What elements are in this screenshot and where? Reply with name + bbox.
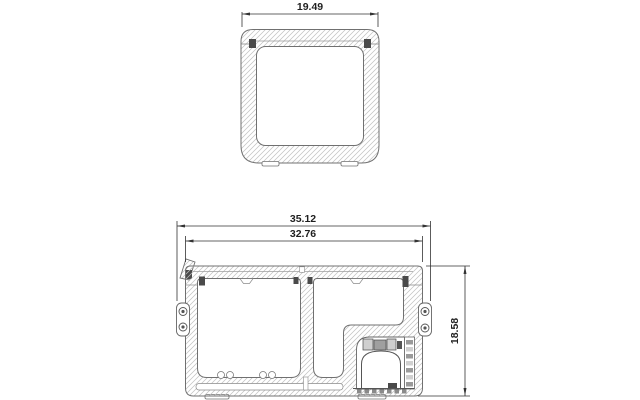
arrowhead [177, 225, 185, 228]
lid-center-seam [300, 267, 305, 273]
fin [406, 375, 413, 380]
bottom-channel [196, 384, 343, 391]
dimension-label-top-width: 19.49 [297, 1, 323, 13]
rail-tooth [380, 390, 385, 394]
latch-plate-left [177, 303, 190, 336]
left-compartment [198, 279, 301, 378]
front-section-view [177, 259, 432, 399]
fin [406, 340, 413, 345]
latch-plate-right [419, 303, 432, 336]
fin [406, 382, 413, 387]
latch-screw-center [423, 326, 426, 329]
rail-tooth [395, 390, 400, 394]
gasket-divider-right [308, 277, 313, 284]
compressor-components [363, 339, 402, 350]
component [387, 339, 396, 350]
drain-tube [260, 372, 267, 379]
arrowhead [415, 240, 423, 243]
arrowhead [464, 388, 467, 396]
gasket-corner-left [199, 277, 205, 286]
arrowhead [464, 266, 467, 274]
fin [406, 354, 413, 359]
drain-tube [269, 372, 276, 379]
component [363, 339, 373, 350]
latch-screw-center [181, 310, 184, 313]
top-view-inner-cavity [257, 47, 364, 146]
drawing-canvas: 19.49 [0, 0, 640, 400]
component [374, 340, 386, 350]
component [397, 341, 402, 349]
drawing-svg: 19.49 [0, 0, 640, 400]
dimension-label-inner-width: 32.76 [290, 228, 316, 240]
dimension-top-width: 19.49 [242, 1, 378, 27]
rail-tooth [365, 390, 370, 394]
fin [406, 361, 413, 366]
arrowhead [370, 13, 378, 16]
arrowhead [242, 13, 250, 16]
top-section-view [241, 30, 379, 167]
latch-screw-center [423, 310, 426, 313]
dimension-inner-width: 32.76 [186, 228, 423, 262]
arrowhead [186, 240, 194, 243]
gasket-divider-left [294, 277, 299, 284]
fin [406, 368, 413, 373]
compressor-compartment [353, 337, 415, 394]
lid-latch-right [364, 39, 371, 48]
top-view-foot-right [341, 162, 358, 167]
rail-tooth [372, 390, 377, 394]
dimension-label-outer-width: 35.12 [290, 213, 316, 225]
top-view-foot-left [262, 162, 279, 167]
terminal-strip [405, 337, 415, 389]
drain-tube [218, 372, 225, 379]
rail-tooth [357, 390, 362, 394]
rail-tooth [402, 390, 407, 394]
rail-tooth [387, 390, 392, 394]
latch-screw-center [181, 325, 184, 328]
gasket-corner-right [403, 276, 409, 287]
drain-tube [227, 372, 234, 379]
fin [406, 347, 413, 352]
dimension-label-height: 18.58 [449, 318, 461, 344]
lid-latch-left [249, 39, 256, 48]
divider-drain-slot [304, 377, 309, 390]
arrowhead [423, 225, 431, 228]
